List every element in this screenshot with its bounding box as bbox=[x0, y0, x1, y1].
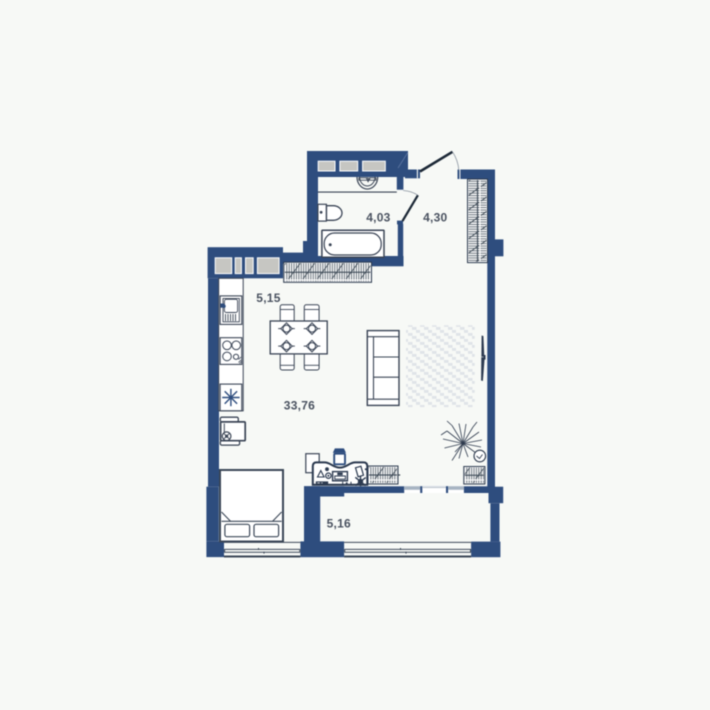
svg-text:4,03: 4,03 bbox=[366, 211, 390, 225]
svg-text:5,15: 5,15 bbox=[256, 291, 280, 305]
svg-text:5,16: 5,16 bbox=[327, 517, 351, 531]
svg-text:33,76: 33,76 bbox=[284, 399, 315, 413]
svg-text:4,30: 4,30 bbox=[423, 211, 447, 225]
